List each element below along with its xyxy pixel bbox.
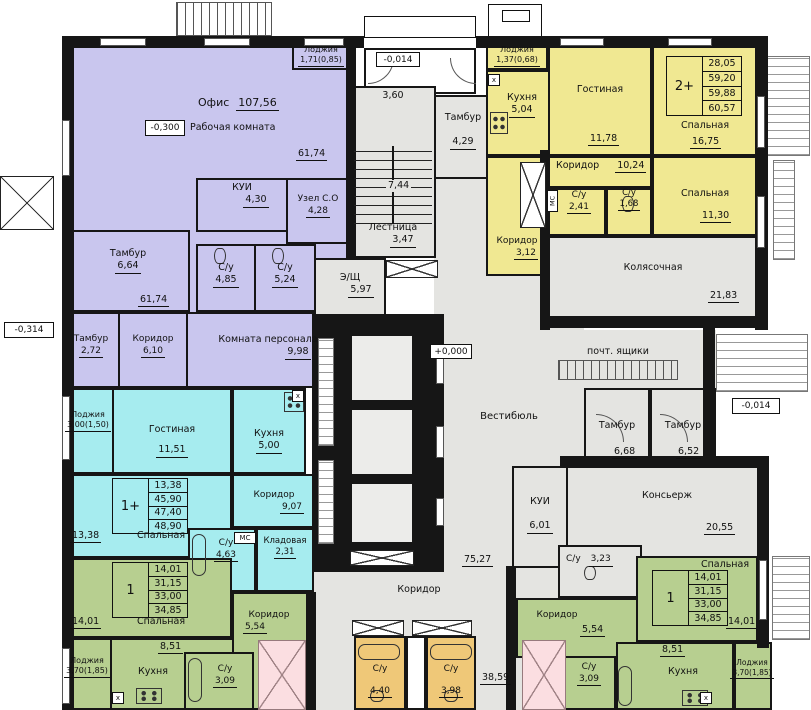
vent-box-left [352, 620, 404, 636]
room-stroller [548, 236, 758, 328]
external-stair-hatch-top-left [176, 2, 272, 36]
2plus-type: 2+ [667, 57, 702, 115]
1plus-living-label: Гостиная11,51 [112, 424, 232, 458]
1plus-bedroom-label: Спальная [116, 530, 206, 542]
mailboxes-icon [558, 360, 678, 380]
1left-stat-0: 14,01 [149, 563, 187, 577]
external-hatch-left [0, 176, 54, 230]
1right-stat-1: 31,15 [689, 585, 727, 599]
window-top-4 [560, 38, 604, 46]
elevator-car-2 [350, 408, 414, 476]
2plus-stat-1: 59,20 [703, 72, 741, 87]
office-loggia-label: Лоджия1,71(0,85) [292, 45, 350, 67]
external-ladder-right [773, 160, 795, 260]
2plus-bedroom2-area: 11,30 [700, 210, 731, 223]
1left-bedroom-label: Спальная [116, 616, 206, 628]
2plus-stat-2: 59,88 [703, 87, 741, 102]
1right-corridor-area: 5,54 [580, 624, 605, 637]
level-mark-vestibule: +0,000 [430, 344, 472, 359]
wall-right-indent [703, 328, 715, 468]
washer-box-1left: х [112, 692, 124, 704]
elevator-door-2 [436, 426, 444, 458]
1plus-corridor-label: Коридор9,07 [232, 490, 316, 514]
tambour-668-label: Тамбур [584, 420, 650, 432]
pink-right-tint [522, 640, 566, 710]
office-workroom-area-2: 61,74 [138, 294, 169, 307]
vent-shaft-stair [386, 260, 438, 278]
1plus-stat-2: 47,40 [149, 507, 187, 521]
shaft-cross-bottom [350, 550, 414, 566]
office-title: Офис 107,56 [198, 96, 279, 111]
shaft-between-wc [406, 636, 426, 710]
1right-wc-label: С/у3,09 [564, 662, 614, 686]
2plus-bedroom1-area: 16,75 [690, 136, 721, 149]
wall-stroller-bottom [548, 316, 768, 328]
2plus-loggia-label: Лоджия1,37(0,68) [486, 45, 548, 67]
1left-stat-2: 33,00 [149, 591, 187, 605]
office-unit-co-label: Узел С.О4,28 [286, 194, 350, 218]
2plus-corridor2-label: Коридор3,12 [486, 236, 548, 260]
office-workroom-area-1: 61,74 [296, 148, 327, 161]
window-right-2 [757, 196, 765, 248]
staircase-label: Лестница3,47 [350, 222, 436, 248]
1left-kitchen-label: Кухня [118, 666, 188, 678]
vent-box-right [412, 620, 472, 636]
external-balcony-right-mid [716, 334, 808, 392]
1left-loggia-label: Лоджия3,70(1,85) [62, 656, 112, 678]
1plus-stat-1: 45,90 [149, 493, 187, 507]
2plus-bedroom2-label: Спальная [652, 188, 758, 200]
wall-corridor-east [506, 566, 516, 710]
2plus-living-label: Гостиная [548, 84, 652, 96]
1plus-stats-box: 1+ 13,38 45,90 47,40 48,90 [112, 478, 188, 534]
entry-tambour-label: Тамбур4,29 [434, 112, 492, 150]
1right-stats-box: 1 14,01 31,15 33,00 34,85 [652, 570, 728, 626]
stroller-area: 21,83 [708, 290, 739, 303]
1left-kitchen-area: 8,51 [158, 641, 183, 654]
1right-stat-2: 33,00 [689, 599, 727, 613]
2plus-kitchen-label: Кухня5,04 [494, 92, 550, 118]
1left-stat-1: 31,15 [149, 577, 187, 591]
wall-concierge-top [560, 456, 768, 468]
entrance-canopy [364, 16, 476, 38]
elevator-door-3 [436, 498, 444, 526]
2plus-stats-box: 2+ 28,05 59,20 59,88 60,57 [666, 56, 742, 116]
office-workroom-label: Рабочая комната [190, 122, 276, 134]
1left-stats-box: 1 14,01 31,15 33,00 34,85 [112, 562, 188, 618]
stove-icon-1left [136, 688, 162, 704]
1right-stat-3: 34,85 [689, 612, 727, 625]
kui-common-label: КУИ6,01 [512, 496, 568, 534]
1plus-kitchen-label: Кухня5,00 [232, 428, 306, 454]
window-top-5 [668, 38, 712, 46]
level-mark-right: -0,014 [732, 398, 780, 414]
corridor-common-area: 38,59 [480, 672, 511, 685]
concierge-label: Консьерж [566, 490, 768, 502]
washer-box-1right: х [700, 692, 712, 704]
stair-upper-area-label: 3,60 [350, 90, 436, 102]
elevator-car-1 [350, 334, 414, 402]
closet-cross-2plus [520, 162, 546, 228]
elevator-car-3 [350, 482, 414, 544]
1right-type: 1 [653, 571, 688, 625]
1left-bedroom-area: 14,01 [70, 616, 101, 629]
room-wc-323 [558, 545, 642, 598]
1right-kitchen-area: 8,51 [660, 644, 685, 657]
tambour-652-label: Тамбур [650, 420, 716, 432]
1plus-loggia-label: Лоджия3,00(1,50) [62, 410, 114, 432]
2plus-corridor1-label: Коридор10,24 [556, 160, 646, 173]
2plus-stat-3: 60,57 [703, 101, 741, 115]
tambour-668-area: 6,68 [612, 446, 637, 459]
window-top-1 [100, 38, 146, 46]
window-left-1 [62, 120, 70, 176]
bath-icon-wc398 [430, 644, 472, 660]
wall-right-top [755, 36, 768, 330]
office-wc2-label: С/у5,24 [254, 262, 316, 288]
2plus-bedroom1-label: Спальная [652, 120, 758, 132]
vestibule-label: Вестибюль [434, 410, 584, 423]
window-top-2 [204, 38, 250, 46]
wc-440-label: С/у4,40 [354, 664, 406, 698]
window-right-1 [757, 96, 765, 148]
corridor-common-label: Коридор [384, 584, 454, 596]
mailboxes-label: почт. ящики [558, 346, 678, 358]
1plus-type: 1+ [113, 479, 148, 533]
concierge-area: 20,55 [704, 522, 735, 535]
stroller-label: Колясочная [548, 262, 758, 274]
1left-wc-label: С/у3,09 [200, 664, 250, 688]
vestibule-area: 75,27 [462, 554, 493, 567]
washer-box-2plus: х [488, 74, 500, 86]
floor-plan: ↓ [0, 0, 811, 710]
pink-left-tint [258, 640, 306, 710]
office-tambour2-label: Тамбур2,72 [62, 334, 120, 358]
office-kui-label: КУИ4,30 [196, 182, 288, 208]
1right-loggia-label: Лоджия3,70(1,85) [730, 658, 774, 679]
office-tambour1-label: Тамбур6,64 [66, 248, 190, 274]
external-structure-top-inner [502, 10, 530, 22]
2plus-stat-0: 28,05 [703, 57, 741, 72]
office-staff-label: Комната персонала9,98 [186, 334, 350, 360]
office-wc1-label: С/у4,85 [196, 262, 256, 288]
1left-type: 1 [113, 563, 148, 617]
bath-icon-1right-wc [618, 666, 632, 706]
level-mark-office: -0,300 [145, 120, 185, 136]
window-right-3 [759, 560, 767, 620]
1plus-storage-label: Кладовая2,31 [256, 536, 314, 559]
stair-flight-area-label: 7,44 [386, 180, 411, 192]
wc-398-label: С/у3,98 [426, 664, 476, 698]
office-corridor-label: Коридор6,10 [118, 334, 188, 358]
1right-bedroom-area: 14,01 [726, 616, 757, 629]
bath-icon-wc440 [358, 644, 400, 660]
level-mark-left: -0,314 [4, 322, 54, 338]
esh-label: Э/Щ5,97 [314, 272, 386, 298]
wc-323-label: С/у3,23 [566, 554, 613, 567]
1plus-bedroom-area: 13,38 [70, 530, 101, 543]
level-mark-entry: -0,014 [376, 52, 420, 67]
tambour-652-area: 6,52 [676, 446, 701, 459]
1plus-stat-0: 13,38 [149, 479, 187, 493]
toilet-icon-wc323 [584, 566, 596, 580]
1plus-wc-label: С/у4,63 [200, 538, 252, 562]
1right-corridor-label: Коридор [522, 610, 592, 622]
1left-corridor-label: Коридор5,54 [226, 610, 312, 634]
2plus-wc2-label: С/у1,68 [606, 188, 652, 211]
washer-box-1plus: х [292, 390, 304, 402]
1right-kitchen-label: Кухня [648, 666, 718, 678]
external-balcony-right-bottom [772, 556, 810, 640]
2plus-living-area: 11,78 [588, 133, 619, 146]
shaft-slot-2 [318, 460, 334, 544]
1right-stat-0: 14,01 [689, 571, 727, 585]
2plus-wc1-label: С/у2,41 [552, 190, 606, 214]
